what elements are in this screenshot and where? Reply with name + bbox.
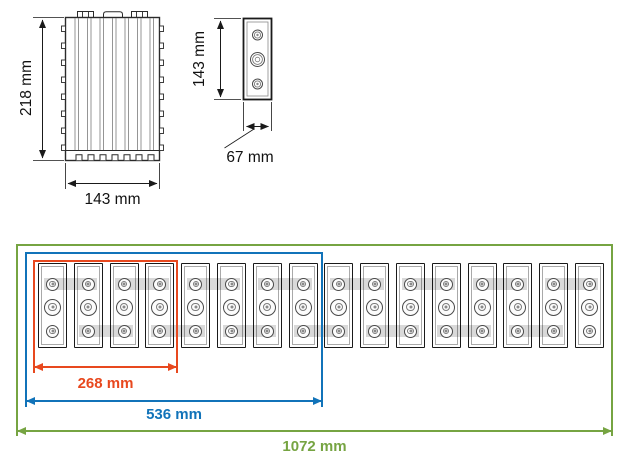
battery-dimension-drawing: 218 mm 143 mm [0, 0, 630, 470]
front-width-label: 143 mm [85, 191, 141, 208]
front-width-dimension [66, 163, 160, 189]
arrowhead-left-icon [17, 427, 26, 435]
arrowhead-right-icon [603, 427, 612, 435]
front-height-label: 218 mm [18, 60, 35, 116]
side-depth-dimension [225, 102, 272, 148]
dimension-label: 536 mm [104, 406, 244, 423]
side-depth-label: 67 mm [226, 149, 273, 166]
front-view-drawing: 218 mm 143 mm [18, 12, 164, 209]
front-height-dimension [33, 18, 64, 161]
side-height-label: 143 mm [191, 31, 208, 87]
side-height-dimension [214, 19, 241, 100]
bottom-feet [76, 155, 154, 160]
dimension-arrow [18, 430, 611, 432]
carry-handle [104, 12, 123, 18]
technical-drawing-views: 218 mm 143 mm [0, 0, 630, 236]
dimension-label: 1072 mm [245, 438, 385, 455]
cell-array-diagram: 268 mm536 mm1072 mm [0, 238, 630, 470]
dimension-label: 268 mm [36, 375, 176, 392]
side-view-drawing: 143 mm 67 mm [191, 19, 274, 167]
